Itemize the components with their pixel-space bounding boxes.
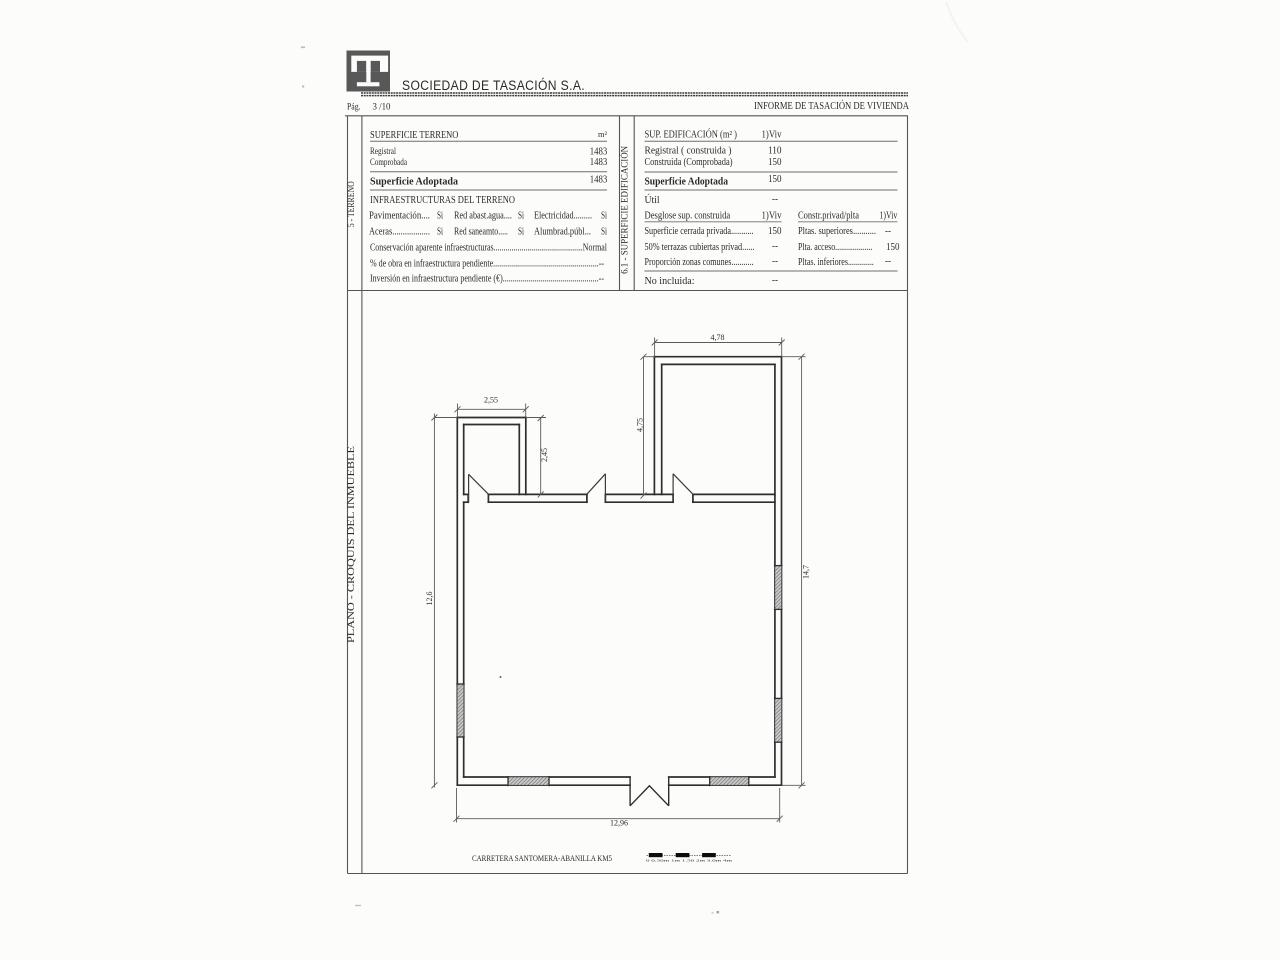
svg-text:1)Viv: 1)Viv [879,210,897,221]
svg-text:14,7: 14,7 [802,565,811,579]
svg-text:--: -- [772,241,778,252]
svg-text:1483: 1483 [590,147,608,158]
svg-text:Registral ( construida ): Registral ( construida ) [645,146,732,157]
svg-text:150: 150 [886,242,900,253]
svg-text:Pavimentación....: Pavimentación.... [369,211,430,222]
svg-text:Desglose sup. construida: Desglose sup. construida [645,210,731,221]
svg-text:Si: Si [518,211,524,222]
svg-text:Si: Si [601,211,607,222]
svg-text:Plta. acceso..................: Plta. acceso................... [798,242,873,253]
svg-text:Si: Si [518,227,524,238]
svg-text:Superficie Adoptada: Superficie Adoptada [645,176,729,188]
svg-text:1483: 1483 [590,157,608,168]
svg-text:1)Viv: 1)Viv [762,210,782,221]
svg-text:4,78: 4,78 [711,333,725,342]
svg-text:Superficie Adoptada: Superficie Adoptada [370,175,459,187]
svg-text:Proporción zonas comunes......: Proporción zonas comunes........... [645,257,754,268]
svg-text:Pág.: Pág. [347,102,361,113]
svg-text:Si: Si [601,227,607,238]
svg-text:6.1 - SUPERFICIE EDIFICACIÓN: 6.1 - SUPERFICIE EDIFICACIÓN [618,146,630,274]
svg-text:--: -- [772,275,778,286]
svg-text:% de obra en infraestructura p: % de obra en infraestructura pendiente..… [370,258,604,269]
svg-text:150: 150 [768,157,782,168]
svg-text:m²: m² [598,130,608,139]
svg-text:SOCIEDAD DE TASACIÓN S.A.: SOCIEDAD DE TASACIÓN S.A. [402,78,585,93]
svg-text:Red saneamto.....: Red saneamto..... [454,227,508,238]
svg-text:0 0.50m 1m 1.50 2m: 0 0.50m 1m 1.50 2m 3.0m 4m [646,859,733,863]
svg-text:Red abast.agua....: Red abast.agua.... [454,211,512,222]
svg-text:--: -- [772,256,778,267]
svg-text:1)Viv: 1)Viv [762,130,782,141]
svg-text:PLANO - CROQUIS DEL INMUEBLE: PLANO - CROQUIS DEL INMUEBLE [347,446,357,643]
svg-text:--: -- [885,256,891,267]
svg-text:1483: 1483 [590,174,608,185]
svg-text:12,6: 12,6 [425,592,434,606]
svg-text:110: 110 [768,146,782,157]
svg-text:Si: Si [437,227,443,238]
svg-text:Si: Si [437,211,443,222]
svg-text:Electricidad.........: Electricidad......... [534,211,592,222]
svg-text:Aceras..................: Aceras.................. [369,227,430,238]
svg-text:Inversión en infraestructura p: Inversión en infraestructura pendiente (… [370,274,604,285]
svg-text:Conservación aparente infraest: Conservación aparente infraestructuras..… [370,242,607,253]
svg-text:4,75: 4,75 [636,418,645,432]
svg-text:2,55: 2,55 [484,396,498,405]
svg-text:3 /10: 3 /10 [373,102,391,113]
svg-text:Pltas. inferiores.............: Pltas. inferiores............. [798,257,874,268]
svg-text:Constr.privad/plta: Constr.privad/plta [798,210,859,221]
svg-text:150: 150 [768,174,782,185]
svg-text:Alumbrad.públ...: Alumbrad.públ... [534,227,591,238]
svg-text:SUP. EDIFICACIÓN (m² ): SUP. EDIFICACIÓN (m² ) [645,129,738,141]
svg-text:12,96: 12,96 [610,819,628,828]
svg-text:150: 150 [768,226,782,237]
svg-text:--: -- [772,194,778,205]
svg-text:CARRETERA SANTOMERA-ABANILLA K: CARRETERA SANTOMERA-ABANILLA KM5 [472,853,612,863]
svg-text:Comprobada: Comprobada [370,158,407,168]
svg-text:INFORME DE TASACIÓN DE VIVIEND: INFORME DE TASACIÓN DE VIVIENDA [754,100,910,112]
svg-text:2,45: 2,45 [540,448,549,462]
svg-text:Pltas. superiores...........: Pltas. superiores........... [798,226,876,237]
svg-text:Superficie cerrada privada....: Superficie cerrada privada........... [645,226,754,237]
svg-text:50% terrazas cubiertas privad.: 50% terrazas cubiertas privad...... [645,242,755,253]
svg-text:5 - TERRENO: 5 - TERRENO [347,181,357,227]
svg-text:Útil: Útil [645,194,660,206]
svg-text:INFRAESTRUCTURAS DEL TERRENO: INFRAESTRUCTURAS DEL TERRENO [370,195,515,206]
svg-text:No incluida:: No incluida: [645,276,695,287]
svg-text:Registral: Registral [370,147,396,157]
svg-text:Construida (Comprobada): Construida (Comprobada) [645,157,733,168]
svg-text:--: -- [885,226,891,237]
svg-text:SUPERFICIE TERRENO: SUPERFICIE TERRENO [370,130,459,141]
